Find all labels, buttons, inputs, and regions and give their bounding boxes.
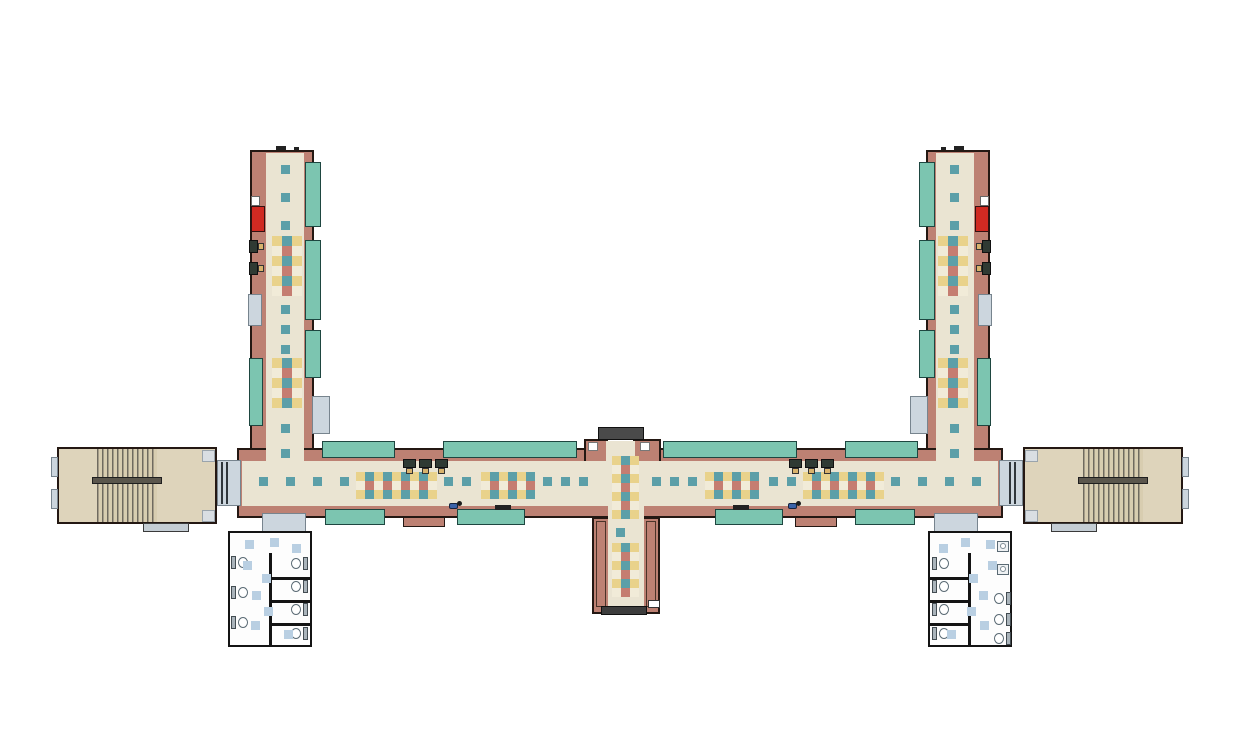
left-wing-room-west [249, 358, 263, 426]
west-restroom-floor-tile [270, 538, 279, 547]
desk-top [249, 262, 258, 275]
west-restroom-floor-tile [292, 544, 301, 553]
right-wing-accent-tile [950, 325, 959, 334]
left-wing-accent-tile [281, 165, 290, 174]
west-restroom-stall-toilet [288, 557, 308, 570]
entry-stub-tile-carpet-north-cell [612, 474, 621, 483]
desk-chair [258, 243, 264, 250]
east-restroom-floor-tile [986, 540, 995, 549]
toilet-tank [231, 616, 236, 629]
right-wing-accent-tile [950, 221, 959, 230]
corridor-accent-tile [972, 477, 981, 486]
toilet-tank [303, 627, 308, 640]
right-wing-room-west-2 [919, 240, 935, 320]
corridor-tile-carpet-3-cell [705, 490, 714, 499]
left-wing-tile-carpet-a-cell [272, 286, 282, 296]
east-restroom-wall-toilet [991, 592, 1011, 605]
corridor-desk [419, 459, 435, 475]
left-wing-tile-carpet-a-cell [282, 246, 292, 256]
corridor-accent-tile [444, 477, 453, 486]
west-building-stairs [97, 449, 157, 522]
corridor-tile-carpet-1-cell [428, 490, 437, 499]
toilet-bowl [238, 587, 248, 598]
corridor-tile-carpet-4-cell [830, 481, 839, 490]
corridor-tile-carpet-1-cell [383, 481, 392, 490]
entry-stub-tile-carpet-north-cell [612, 465, 621, 474]
east-restroom-floor-tile [939, 544, 948, 553]
floor-plan [0, 0, 1240, 744]
corridor-tile-carpet-2-cell [526, 490, 535, 499]
toilet-bowl [291, 558, 301, 569]
corridor-tile-carpet-2-cell [490, 472, 499, 481]
right-wing-tile-carpet-b-cell [958, 388, 968, 398]
entry-stub-tile-carpet-north-cell [630, 474, 639, 483]
entry-stub-tile-carpet-north-cell [621, 465, 630, 474]
corridor-tile-carpet-1-cell [374, 481, 383, 490]
corridor-desk [435, 459, 451, 475]
left-wing-tile-carpet-b-cell [292, 388, 302, 398]
corridor-tile-carpet-3-cell [714, 490, 723, 499]
entry-stub-tile-carpet-south-cell [612, 552, 621, 561]
left-wing-room-east-3 [305, 330, 321, 378]
right-wing-tile-carpet-b-cell [948, 378, 958, 388]
east-restroom-stall-toilet [932, 580, 952, 593]
entry-stub-tile-carpet-south-cell [621, 561, 630, 570]
desk-top [403, 459, 416, 468]
entry-stub-tile-carpet-north-cell [621, 501, 630, 510]
corridor-accent-tile [670, 477, 679, 486]
corridor-bench-mark [495, 505, 511, 510]
left-wing-tile-carpet-a-cell [282, 286, 292, 296]
right-wing-tile-carpet-b-cell [958, 378, 968, 388]
left-wing-tile-carpet-a-cell [282, 256, 292, 266]
desk-top [249, 240, 258, 253]
toilet-tank [932, 557, 937, 570]
east-restroom-floor-tile [961, 538, 970, 547]
corridor-tile-carpet-1-cell [365, 481, 374, 490]
left-wing-window-bay-east [312, 396, 330, 434]
corridor-tile-carpet-4-cell [857, 481, 866, 490]
corridor-tile-carpet-1-cell [356, 490, 365, 499]
entry-stub-tile-carpet-north-cell [621, 456, 630, 465]
desk-chair [824, 468, 831, 474]
corridor-tile-carpet-3-cell [732, 481, 741, 490]
corridor-bench-mark [733, 505, 749, 510]
corridor-tile-carpet-1-cell [374, 472, 383, 481]
entry-stub-tile-carpet-south-cell [621, 570, 630, 579]
right-wing-tile-carpet-b-cell [958, 368, 968, 378]
east-building-corner-nw [1025, 450, 1038, 462]
east-restroom-floor-tile [979, 591, 988, 600]
left-wing-equipment-white [251, 196, 260, 206]
desk-top [419, 459, 432, 468]
corridor-room-south-2 [457, 509, 525, 525]
west-building-corner-se [202, 510, 215, 522]
south-wall-bump-left [403, 517, 445, 527]
right-wing-tile-carpet-a-cell [948, 256, 958, 266]
corridor-tile-carpet-4-cell [875, 472, 884, 481]
right-wing-roof-mark [954, 146, 964, 150]
corridor-tile-carpet-3-cell [750, 472, 759, 481]
corridor-tile-carpet-2-cell [526, 472, 535, 481]
right-wing-tile-carpet-a-cell [948, 236, 958, 246]
corridor-tile-carpet-4-cell [857, 472, 866, 481]
left-wing-tile-carpet-a-cell [292, 236, 302, 246]
desk-top [982, 262, 991, 275]
right-wing-window-bay-west [910, 396, 928, 434]
right-wing-tile-carpet-a-cell [948, 266, 958, 276]
right-wing-tile-carpet-a-cell [958, 246, 968, 256]
right-wing-room-east [977, 358, 991, 426]
corridor-tile-carpet-3-cell [750, 481, 759, 490]
right-wing-window-bay-east [978, 294, 992, 326]
corridor-tile-carpet-1-cell [392, 481, 401, 490]
right-wing-tile-carpet-a-cell [938, 276, 948, 286]
corridor-tile-carpet-2-cell [499, 481, 508, 490]
right-wing-accent-tile [950, 424, 959, 433]
corridor-tile-carpet-2-cell [490, 481, 499, 490]
right-wing-tile-carpet-a-cell [938, 256, 948, 266]
left-wing-tile-carpet-b-cell [292, 368, 302, 378]
desk-top [435, 459, 448, 468]
north-entry-door-right [640, 442, 650, 451]
right-wing-tile-carpet-a-cell [948, 246, 958, 256]
corridor-tile-carpet-2-cell [517, 472, 526, 481]
left-wing-tile-carpet-b-cell [272, 378, 282, 388]
right-wing-room-west-1 [919, 162, 935, 227]
entry-stub-tile-carpet-north-cell [612, 501, 621, 510]
west-restroom-floor-tile [264, 607, 273, 616]
toilet-bowl [994, 633, 1004, 644]
entry-stub-tile-carpet-south-cell [621, 552, 630, 561]
corridor-accent-tile [561, 477, 570, 486]
east-building-stairs [1083, 449, 1143, 522]
corridor-tile-carpet-2-cell [508, 490, 517, 499]
entry-stub-tile-carpet-north-cell [621, 483, 630, 492]
corridor-tile-carpet-4-cell [830, 490, 839, 499]
corridor-tile-carpet-2-cell [499, 490, 508, 499]
right-wing-equipment-red [975, 206, 989, 232]
corridor-tile-carpet-4-cell [812, 481, 821, 490]
desk-chair [258, 265, 264, 272]
east-restroom-sink [997, 541, 1009, 552]
east-stair-landing [1078, 477, 1148, 484]
toilet-tank [231, 556, 236, 569]
left-wing-tile-carpet-a-cell [272, 256, 282, 266]
sink-basin [1000, 543, 1006, 549]
corridor-tile-carpet-4-cell [839, 490, 848, 499]
corridor-accent-tile [579, 477, 588, 486]
right-wing-desk [975, 262, 991, 278]
corridor-tile-carpet-4-cell [875, 490, 884, 499]
right-wing-tile-carpet-a-cell [958, 256, 968, 266]
corridor-accent-tile [286, 477, 295, 486]
left-wing-accent-tile [281, 305, 290, 314]
east-restroom-sink [997, 564, 1009, 575]
right-wing-tile-carpet-b-cell [948, 358, 958, 368]
entry-stub-tile-carpet-north-cell [630, 483, 639, 492]
corridor-tile-carpet-1-cell [410, 481, 419, 490]
right-wing-tile-carpet-a-cell [938, 286, 948, 296]
west-restroom-wall-toilet [231, 586, 251, 599]
right-wing-accent-tile [950, 305, 959, 314]
right-wing-tile-carpet-b-cell [938, 388, 948, 398]
left-wing-tile-carpet-b-cell [282, 358, 292, 368]
toilet-bowl [939, 581, 949, 592]
left-wing-desk [249, 240, 265, 256]
entry-stub-tile-carpet-north-cell [612, 510, 621, 519]
left-wing-tile-carpet-a-cell [292, 266, 302, 276]
corridor-tile-carpet-4-cell [848, 472, 857, 481]
corridor-tile-carpet-2-cell [481, 490, 490, 499]
left-wing-tile-carpet-b-cell [272, 358, 282, 368]
entry-stub-tile-carpet-south-cell [630, 543, 639, 552]
left-wing-accent-tile [281, 221, 290, 230]
corridor-accent-tile [769, 477, 778, 486]
entry-stub-tile-carpet-south-cell [630, 552, 639, 561]
east-restroom-wall-toilet [991, 613, 1011, 626]
corridor-room-north-3 [663, 441, 797, 458]
east-restroom-floor-tile [980, 621, 989, 630]
left-wing-desk [249, 262, 265, 278]
corridor-accent-tile [891, 477, 900, 486]
entry-stub-tile-carpet-south-cell [630, 561, 639, 570]
corridor-tile-carpet-4-cell [839, 481, 848, 490]
entry-stub-tile-carpet-north-cell [612, 483, 621, 492]
left-wing-tile-carpet-a-cell [292, 276, 302, 286]
right-wing-tile-carpet-b-cell [938, 358, 948, 368]
right-wing-tile-carpet-a-cell [948, 286, 958, 296]
corridor-tile-carpet-2-cell [508, 472, 517, 481]
corridor-tile-carpet-1-cell [383, 490, 392, 499]
west-building-canopy [143, 523, 189, 532]
corridor-room-south-4 [855, 509, 915, 525]
north-entry-door-left [588, 442, 598, 451]
corridor-accent-tile [259, 477, 268, 486]
left-wing-tile-carpet-a-cell [292, 256, 302, 266]
corridor-tile-carpet-2-cell [499, 472, 508, 481]
left-wing-tile-carpet-b-cell [282, 398, 292, 408]
left-wing-roof-dot [294, 147, 299, 150]
corridor-accent-tile [462, 477, 471, 486]
left-wing-tile-carpet-b-cell [272, 398, 282, 408]
corridor-tile-carpet-3-cell [714, 481, 723, 490]
corridor-tile-carpet-4-cell [848, 490, 857, 499]
toilet-tank [231, 586, 236, 599]
entry-stub-tile-carpet-north-cell [630, 510, 639, 519]
corridor-tile-carpet-2-cell [517, 490, 526, 499]
corridor-tile-carpet-4-cell [866, 481, 875, 490]
left-wing-tile-carpet-a-cell [272, 276, 282, 286]
desk-top [821, 459, 834, 468]
corridor-desk [403, 459, 419, 475]
east-restroom-floor-tile [988, 561, 997, 570]
entry-stub-tile-carpet-north-cell [621, 474, 630, 483]
entry-stub-tile-carpet-south-cell [612, 543, 621, 552]
corridor-tile-carpet-1-cell [356, 481, 365, 490]
left-wing-tile-carpet-a-cell [272, 266, 282, 276]
west-restroom-floor-tile [284, 630, 293, 639]
east-restroom-stall-toilet [932, 603, 952, 616]
left-wing-tile-carpet-a-cell [292, 286, 302, 296]
left-wing-accent-tile [281, 193, 290, 202]
right-wing-tile-carpet-a-cell [958, 266, 968, 276]
west-restroom-stall-toilet [288, 580, 308, 593]
corridor-tile-carpet-4-cell [857, 490, 866, 499]
west-building-corner-ne [202, 450, 215, 462]
west-restroom-floor-tile [245, 540, 254, 549]
west-stair-landing [92, 477, 162, 484]
entry-stub-tile-carpet-south-cell [612, 570, 621, 579]
left-wing-room-east-1 [305, 162, 321, 227]
corridor-tile-carpet-1-cell [356, 472, 365, 481]
toilet-tank [1006, 613, 1011, 626]
corridor-tile-carpet-1-cell [401, 481, 410, 490]
corridor-tile-carpet-4-cell [821, 481, 830, 490]
desk-top [805, 459, 818, 468]
left-wing-tile-carpet-b-cell [282, 378, 292, 388]
left-wing-tile-carpet-a-cell [272, 246, 282, 256]
east-building-door-upper [1182, 457, 1189, 477]
corridor-tile-carpet-1-cell [392, 490, 401, 499]
west-restroom-divider-3 [269, 623, 312, 626]
west-building-door-upper [51, 457, 58, 477]
corridor-tile-carpet-4-cell [839, 472, 848, 481]
west-restroom-floor-tile [252, 591, 261, 600]
desk-chair [406, 468, 413, 474]
floor-plan-canvas [0, 0, 1240, 744]
corridor-tile-carpet-4-cell [848, 481, 857, 490]
left-wing-room-east-2 [305, 240, 321, 320]
corridor-desk [789, 459, 805, 475]
corridor-tile-carpet-3-cell [705, 472, 714, 481]
right-wing-tile-carpet-a-cell [938, 266, 948, 276]
entry-stub-tile-carpet-north-cell [630, 501, 639, 510]
right-wing-tile-carpet-a-cell [938, 236, 948, 246]
left-wing-accent-tile [281, 345, 290, 354]
corridor-tile-carpet-2-cell [481, 472, 490, 481]
west-restroom-floor-tile [251, 621, 260, 630]
right-wing-tile-carpet-b-cell [938, 368, 948, 378]
corridor-tile-carpet-3-cell [741, 472, 750, 481]
left-wing-equipment-red [251, 206, 265, 232]
corridor-tile-carpet-3-cell [741, 490, 750, 499]
corridor-tile-carpet-1-cell [374, 490, 383, 499]
corridor-tile-carpet-1-cell [365, 490, 374, 499]
corridor-tile-carpet-2-cell [481, 481, 490, 490]
desk-top [982, 240, 991, 253]
corridor-room-north-1 [322, 441, 395, 458]
corridor-tile-carpet-1-cell [410, 490, 419, 499]
entry-stub-tile-carpet-south-cell [630, 570, 639, 579]
entry-stub-tile-carpet-north-cell [612, 456, 621, 465]
toilet-bowl [994, 593, 1004, 604]
left-wing-tile-carpet-a-cell [272, 236, 282, 246]
corridor-tile-carpet-4-cell [821, 490, 830, 499]
entry-stub-tile-carpet-south-cell [621, 543, 630, 552]
corridor-tile-carpet-1-cell [419, 481, 428, 490]
corridor-room-north-2 [443, 441, 577, 458]
south-stub-canopy [601, 606, 647, 615]
entry-stub-tile-carpet-north-cell [621, 510, 630, 519]
left-wing-tile-carpet-b-cell [282, 368, 292, 378]
figure-head [457, 501, 462, 506]
right-wing-tile-carpet-a-cell [958, 286, 968, 296]
left-wing-tile-carpet-a-cell [282, 276, 292, 286]
corridor-accent-tile [787, 477, 796, 486]
corridor-tile-carpet-3-cell [741, 481, 750, 490]
north-entry-canopy [598, 427, 644, 440]
toilet-tank [1006, 592, 1011, 605]
entry-stub-tile-carpet-south-cell [612, 561, 621, 570]
entry-stub-tile-carpet-south-cell [621, 579, 630, 588]
corridor-tile-carpet-2-cell [517, 481, 526, 490]
east-restroom-floor-tile [967, 607, 976, 616]
right-wing-tile-carpet-a-cell [938, 246, 948, 256]
left-wing-accent-tile [281, 325, 290, 334]
toilet-tank [1006, 632, 1011, 645]
corridor-desk [821, 459, 837, 475]
toilet-bowl [939, 558, 949, 569]
east-restroom-wall-toilet [991, 632, 1011, 645]
corridor-tile-carpet-4-cell [803, 490, 812, 499]
west-restroom-wall-toilet [231, 616, 251, 629]
corridor-accent-tile [543, 477, 552, 486]
corridor-tile-carpet-2-cell [490, 490, 499, 499]
toilet-tank [932, 603, 937, 616]
toilet-bowl [291, 604, 301, 615]
west-connector-steps [221, 462, 231, 504]
left-wing-window-bay-west [248, 294, 262, 326]
right-wing-tile-carpet-b-cell [948, 398, 958, 408]
corridor-tile-carpet-1-cell [365, 472, 374, 481]
corridor-tile-carpet-4-cell [866, 472, 875, 481]
left-wing-tile-carpet-b-cell [272, 388, 282, 398]
entry-stub-tile-carpet-south-cell [612, 579, 621, 588]
west-building-door-lower [51, 489, 58, 509]
corridor-accent-tile [918, 477, 927, 486]
entry-stub-tile-carpet-north-cell [621, 492, 630, 501]
corridor-accent-tile [313, 477, 322, 486]
entry-stub-tile-carpet-north-cell [630, 456, 639, 465]
east-restroom-floor-tile [947, 630, 956, 639]
right-wing-accent-tile [950, 449, 959, 458]
right-wing-accent-tile [950, 345, 959, 354]
toilet-bowl [994, 614, 1004, 625]
south-stub-room-east [646, 521, 656, 607]
sink-basin [1000, 566, 1006, 572]
east-building-corner-sw [1025, 510, 1038, 522]
right-wing-equipment-white [980, 196, 989, 206]
desk-top [789, 459, 802, 468]
corridor-tile-carpet-3-cell [732, 490, 741, 499]
corridor-tile-carpet-4-cell [803, 481, 812, 490]
person-figure [788, 501, 801, 510]
entry-stub-tile-carpet-south-cell [621, 588, 630, 597]
entry-stub-tile-carpet-south-cell [612, 588, 621, 597]
entry-stub-tile-carpet-south-cell [630, 579, 639, 588]
left-wing-tile-carpet-a-cell [282, 236, 292, 246]
corridor-tile-carpet-3-cell [723, 472, 732, 481]
toilet-tank [932, 627, 937, 640]
right-wing-tile-carpet-b-cell [958, 358, 968, 368]
east-restroom-stall-toilet [932, 557, 952, 570]
toilet-bowl [238, 617, 248, 628]
desk-chair [808, 468, 815, 474]
corridor-tile-carpet-1-cell [383, 472, 392, 481]
corridor-accent-tile [652, 477, 661, 486]
corridor-tile-carpet-2-cell [508, 481, 517, 490]
